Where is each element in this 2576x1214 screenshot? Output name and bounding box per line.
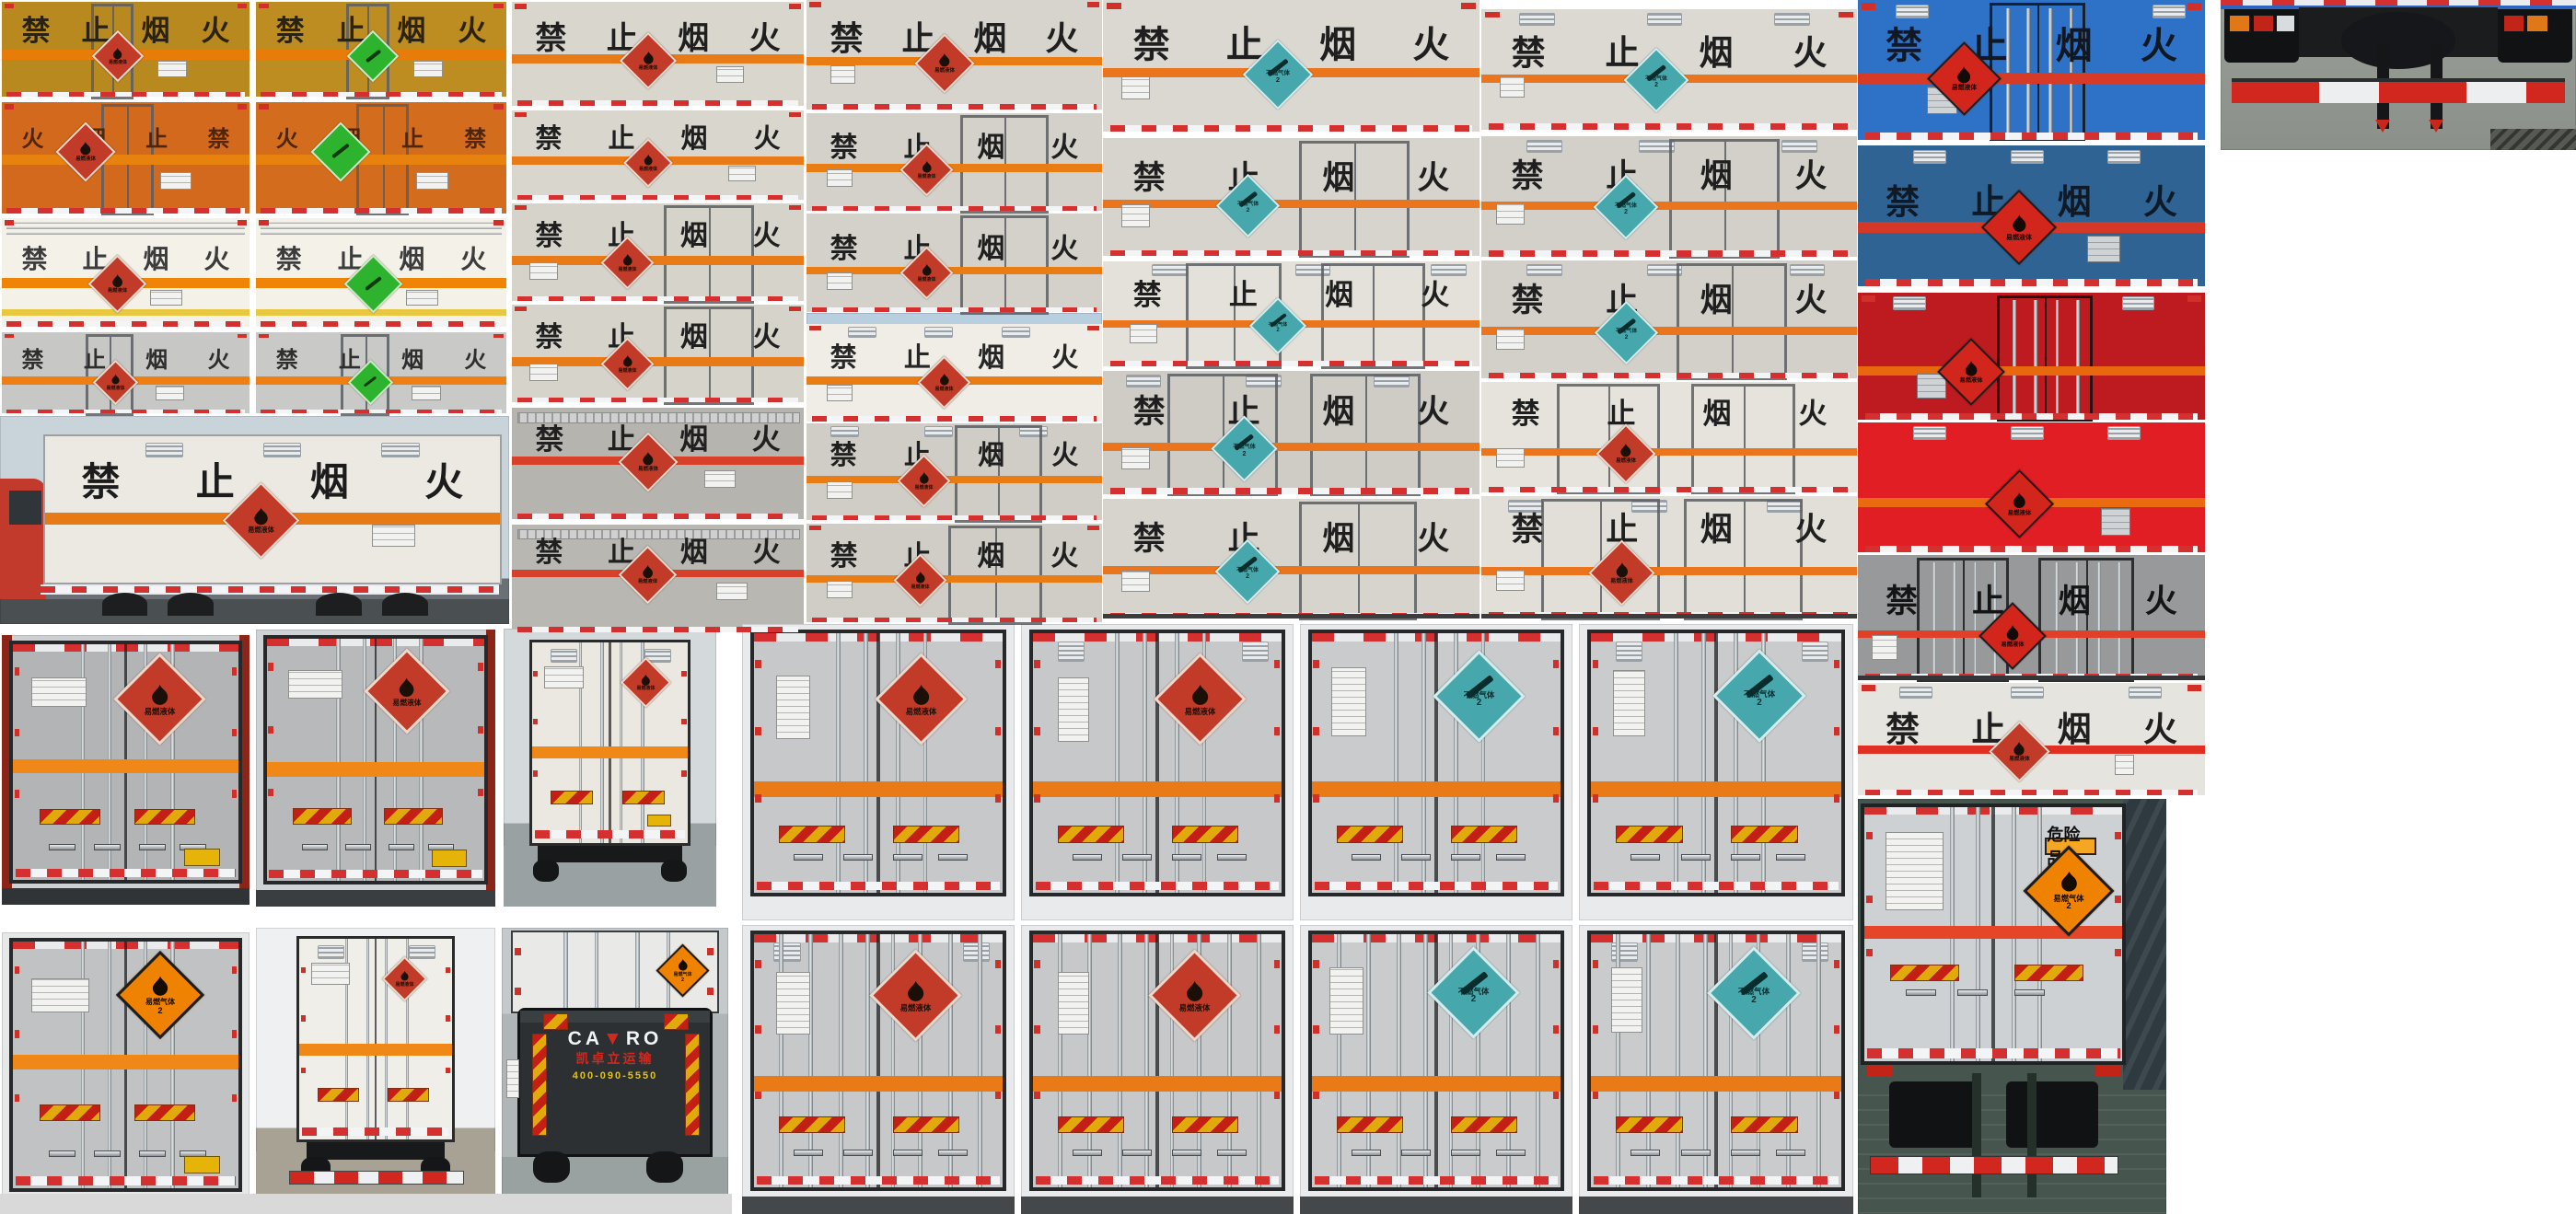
- rear-bumper-bar: [2232, 78, 2566, 104]
- no-fireworks-char: 禁: [535, 126, 562, 153]
- reflective-chevron: [388, 1088, 429, 1102]
- ground-shadow: [1481, 614, 1857, 619]
- info-plate: [704, 470, 736, 488]
- top-rail: [6, 222, 244, 224]
- flame-icon: [2010, 491, 2029, 511]
- warning-stripe: [1103, 200, 1479, 208]
- placard-class-number: 2: [1246, 573, 1249, 581]
- info-plate: [2115, 755, 2134, 775]
- box-truck-side-photo: 易燃液体: [1858, 422, 2205, 552]
- vent-louver: [1774, 13, 1810, 26]
- cargo-box-side: 禁止烟火易燃液体: [1481, 382, 1857, 492]
- edge-marker: [232, 1030, 238, 1038]
- edge-marker: [1553, 727, 1559, 735]
- door-handle: [49, 844, 75, 850]
- info-plate: [1121, 204, 1150, 227]
- rear-doors: 易燃液体: [750, 630, 1006, 896]
- door-handle: [1352, 1150, 1381, 1156]
- background-structure: [2123, 799, 2166, 1090]
- no-fireworks-char: 禁: [207, 129, 229, 151]
- cargo-box-side: 禁止烟火易燃液体: [2, 2, 249, 97]
- no-fireworks-char: 禁: [830, 134, 858, 162]
- non-flammable-gas-placard: 不燃气体2: [1433, 650, 1525, 742]
- info-plate: [1496, 203, 1525, 225]
- placard-face: 易燃液体: [1949, 350, 1993, 394]
- ground-shadow: [1300, 1197, 1572, 1214]
- placard-label: 易燃液体: [639, 167, 657, 171]
- brand-text: RO: [626, 1028, 663, 1049]
- edge-marker: [515, 948, 521, 955]
- rear-doors: 易燃气体2: [9, 938, 242, 1191]
- chassis-rail: [41, 584, 499, 595]
- no-fireworks-char: 禁: [464, 129, 486, 151]
- warning-stripe: [1481, 202, 1857, 210]
- placard-face: 易燃液体: [629, 443, 667, 481]
- door-handle: [139, 1150, 166, 1157]
- vent-louver: [551, 649, 577, 663]
- vent-louver: [848, 327, 876, 338]
- warning-stripe: [1312, 1076, 1561, 1091]
- placard-label: 易燃气体: [145, 999, 175, 1006]
- no-fireworks-char: 止: [1229, 281, 1258, 309]
- truck-rear-doors-photo: 易燃液体: [742, 624, 1015, 920]
- info-plate: [716, 583, 748, 599]
- no-fireworks-char: 火: [22, 129, 44, 151]
- placard-face: 不燃气体2: [1255, 52, 1301, 98]
- flame-icon: [2003, 623, 2022, 642]
- placard-face: 易燃液体: [630, 42, 667, 79]
- reflective-strip: [1036, 1176, 1280, 1185]
- door-gap: [1714, 934, 1717, 1187]
- no-fireworks-text: 禁止烟火: [830, 236, 1079, 263]
- corner-marker: [1087, 2, 1099, 7]
- door-handle: [1172, 1150, 1201, 1156]
- info-plate: [150, 290, 181, 306]
- box-truck-side-photo: 禁止烟火不燃气体2: [1103, 138, 1479, 256]
- warning-stripe: [13, 1055, 238, 1069]
- vent-louver: [1431, 264, 1467, 275]
- edge-marker: [1593, 1092, 1599, 1100]
- info-plate: [827, 169, 853, 187]
- no-fireworks-char: 烟: [2059, 585, 2091, 618]
- reflective-strip: [6, 410, 244, 413]
- no-fireworks-char: 烟: [680, 223, 708, 250]
- ground-shadow: [1579, 1197, 1853, 1214]
- corner-marker: [259, 104, 269, 110]
- warning-triangle: [2375, 120, 2390, 133]
- reflective-strip: [302, 1127, 448, 1136]
- no-fireworks-char: 火: [753, 223, 781, 250]
- info-plate: [776, 676, 810, 740]
- placard-class-number: 2: [1471, 995, 1476, 1005]
- box-truck-side-photo: 禁止烟火不燃气体2: [1103, 499, 1479, 619]
- info-plate: [1613, 670, 1645, 736]
- reflective-strip: [1867, 1048, 2119, 1058]
- no-fireworks-char: 烟: [680, 539, 708, 567]
- reflective-chevron: [551, 791, 593, 804]
- cargo-box-side: 禁止烟火易燃液体: [806, 214, 1102, 312]
- warning-stripe: [532, 746, 689, 758]
- reflective-chevron: [1731, 1116, 1798, 1133]
- info-plate: [1500, 76, 1524, 98]
- reflective-strip: [6, 92, 244, 97]
- tail-light-amber: [2527, 16, 2547, 32]
- rear-doors: 不燃气体2: [1308, 630, 1564, 896]
- door-lock-rod: [385, 939, 388, 1139]
- placard-face: 易燃液体: [1997, 481, 2042, 526]
- no-fireworks-char: 烟: [977, 543, 1004, 571]
- reflective-strip: [517, 398, 797, 402]
- info-plate: [827, 481, 853, 499]
- info-plate: [1121, 447, 1150, 468]
- door-lock-rod: [1394, 633, 1398, 893]
- brand-subtitle: 凯卓立运输: [520, 1049, 710, 1062]
- vent-louver: [2107, 150, 2141, 165]
- corner-marker: [2187, 295, 2201, 302]
- vent-louver: [1790, 264, 1826, 277]
- door-gap: [375, 639, 377, 881]
- no-fireworks-char: 禁: [1512, 284, 1544, 317]
- marker-strip: [2221, 0, 2576, 6]
- no-fireworks-char: 火: [2141, 28, 2177, 64]
- edge-marker: [1313, 1025, 1318, 1034]
- flame-icon: [1954, 65, 1974, 86]
- wheel: [533, 1151, 569, 1183]
- box-truck-side-photo: 禁止烟火: [256, 218, 506, 327]
- vent-louver: [263, 443, 301, 457]
- edge-marker: [15, 1094, 20, 1103]
- warning-stripe: [256, 155, 506, 165]
- reflective-chevron: [1890, 965, 1959, 982]
- gas-cylinder-icon: [364, 376, 377, 387]
- truck-rear-doors-photo: 不燃气体2: [1300, 624, 1572, 920]
- placard-class-number: 2: [1751, 995, 1757, 1005]
- flame-icon: [1618, 444, 1634, 460]
- door-lock-rod: [620, 642, 622, 842]
- reflective-chevron: [384, 808, 442, 825]
- placard-face: 易燃液体: [1600, 551, 1643, 595]
- no-fireworks-char: 火: [753, 539, 781, 567]
- edge-marker: [1866, 896, 1873, 903]
- reflective-strip: [812, 206, 1096, 211]
- no-fireworks-text: 禁止烟火: [830, 543, 1079, 571]
- door-handle: [1731, 1150, 1760, 1156]
- side-door: [1669, 139, 1780, 259]
- no-fireworks-char: 火: [753, 324, 781, 352]
- corner-marker: [2187, 3, 2201, 10]
- flammable-liquid-placard: 易燃液体: [114, 653, 206, 745]
- edge-marker: [755, 794, 760, 803]
- side-door: [1997, 295, 2093, 422]
- door-lock-rod: [1674, 633, 1678, 893]
- door-lock-rod: [1974, 562, 1978, 676]
- reflective-strip: [1489, 250, 1850, 257]
- edge-marker: [1866, 832, 1873, 839]
- side-door-split: [2045, 298, 2047, 419]
- edge-marker: [232, 790, 238, 797]
- warning-stripe: [1481, 567, 1857, 575]
- edge-marker: [232, 1094, 238, 1103]
- flame-icon: [642, 154, 655, 167]
- reflective-chevron: [1731, 826, 1798, 843]
- door-lock-rod: [1536, 934, 1540, 1187]
- reflective-strip: [757, 1176, 1001, 1185]
- flammable-gas-placard: 易燃气体2: [116, 951, 204, 1039]
- no-fireworks-char: 火: [1412, 27, 1449, 64]
- placard-class-number: 2: [1624, 334, 1628, 341]
- reflective-strip: [6, 321, 244, 327]
- placard-label: 易燃液体: [248, 527, 274, 534]
- license-plate: [432, 850, 466, 867]
- rear-bumper: [289, 1171, 463, 1184]
- info-plate: [311, 963, 350, 985]
- reflective-strip: [517, 195, 797, 200]
- vent-louver: [924, 426, 953, 436]
- truck-rear-doors-photo: 易燃气体2: [2, 932, 249, 1214]
- placard-label: 易燃液体: [2009, 757, 2029, 763]
- door-handle: [843, 854, 873, 861]
- flammable-liquid-placard: 易燃液体: [621, 657, 671, 708]
- no-fireworks-text: 禁止烟火: [1133, 162, 1450, 194]
- placard-face: 易燃液体: [130, 669, 190, 729]
- no-fireworks-char: 火: [201, 17, 229, 45]
- vent-louver: [1781, 140, 1817, 153]
- reflective-strip: [269, 870, 482, 878]
- gas-cylinder-icon: [366, 49, 381, 62]
- reflective-strip: [261, 410, 501, 413]
- cargo-box-side: 禁止烟火不燃气体2: [1481, 260, 1857, 378]
- no-fireworks-text: 禁止烟火: [830, 443, 1079, 469]
- edge-marker: [1313, 1092, 1318, 1100]
- edge-marker: [15, 966, 20, 975]
- cargo-box-side: 禁止烟火易燃液体: [806, 0, 1102, 110]
- placard-label: 易燃液体: [396, 983, 414, 988]
- flammable-liquid-placard: 易燃液体: [1985, 469, 2054, 538]
- box-truck-side-photo: 易燃液体: [1858, 293, 2205, 420]
- info-plate: [1121, 76, 1150, 99]
- truck-rear-doors-photo: 易燃液体: [2, 635, 249, 905]
- flame-icon: [1182, 979, 1207, 1004]
- reflective-strip: [1110, 250, 1472, 256]
- placard-face: 不燃气体2: [1226, 550, 1269, 593]
- reflective-strip: [535, 830, 685, 838]
- reflective-strip: [812, 416, 1096, 422]
- side-door: [955, 425, 1043, 523]
- edge-marker: [1593, 960, 1599, 968]
- flame-icon: [621, 354, 635, 369]
- no-fireworks-text: 禁止烟火: [1512, 284, 1828, 317]
- warning-stripe: [1033, 781, 1282, 797]
- edge-marker: [995, 1092, 1001, 1100]
- reflective-strip: [41, 586, 499, 593]
- vent-louver: [1526, 140, 1562, 153]
- box-truck-side-photo: 火烟止禁易燃液体: [2, 102, 249, 214]
- reflective-chevron: [134, 1104, 195, 1121]
- door-handle: [1122, 854, 1152, 861]
- corner-marker: [1107, 3, 1121, 9]
- no-fireworks-char: 火: [207, 350, 229, 372]
- placard-face: 易燃液体: [907, 464, 941, 498]
- placard-face: 不燃气体2: [1635, 59, 1677, 101]
- brand-text: CA: [568, 1028, 603, 1049]
- no-fireworks-char: 禁: [1512, 160, 1544, 192]
- cargo-box-side: 禁止烟火不燃气体2: [1103, 261, 1479, 366]
- vent-louver: [2011, 687, 2044, 699]
- cargo-box-side: 禁止烟火不燃气体2: [1103, 371, 1479, 494]
- side-door: [960, 215, 1049, 315]
- flame-icon: [110, 47, 124, 61]
- no-fireworks-char: 烟: [679, 425, 708, 454]
- reflective-chevron: [1451, 1116, 1517, 1133]
- no-fireworks-char: 禁: [830, 345, 857, 372]
- info-plate: [1121, 571, 1150, 592]
- truck-rear-view-photo: 易燃液体: [256, 928, 495, 1214]
- placard-label: 易燃液体: [934, 69, 955, 74]
- box-truck-side-photo: 禁止烟火易燃液体: [1858, 555, 2205, 680]
- reflective-chevron: [1172, 1116, 1238, 1133]
- no-fireworks-char: 禁: [1512, 36, 1546, 70]
- placard-label: 易燃液体: [1611, 580, 1633, 585]
- cab-window: [9, 491, 41, 525]
- license-plate: [647, 815, 671, 827]
- rear-doors: 易燃液体: [750, 931, 1006, 1191]
- info-plate: [529, 364, 558, 381]
- placard-label: 易燃液体: [1959, 378, 1982, 384]
- door-gap: [1155, 934, 1158, 1187]
- no-fireworks-char: 止: [196, 463, 235, 502]
- door-lock-rod: [595, 932, 598, 1012]
- no-fireworks-char: 火: [203, 247, 229, 272]
- no-fireworks-char: 禁: [830, 236, 858, 263]
- vent-louver: [1802, 942, 1828, 962]
- corner-marker: [1461, 3, 1476, 9]
- door-handle: [94, 1150, 121, 1157]
- placard-face: 不燃气体2: [1259, 307, 1296, 344]
- no-fireworks-char: 禁: [830, 543, 858, 571]
- placard-label: 易燃液体: [108, 290, 127, 295]
- license-plate: [184, 1156, 220, 1174]
- corner-marker: [1839, 12, 1853, 18]
- no-fireworks-char: 烟: [145, 350, 168, 372]
- edge-marker: [1553, 794, 1559, 803]
- edge-marker: [1313, 960, 1318, 968]
- no-fireworks-char: 烟: [310, 463, 349, 502]
- rear-doors: 易燃液体: [296, 936, 455, 1142]
- info-plate: [31, 677, 87, 708]
- corner-marker: [259, 220, 269, 225]
- door-gap: [1434, 934, 1437, 1187]
- door-handle: [1496, 1150, 1526, 1156]
- info-plate: [1886, 832, 1944, 910]
- reflective-chevron: [1058, 826, 1124, 843]
- wheel: [316, 593, 362, 616]
- no-fireworks-char: 火: [464, 350, 486, 372]
- edge-marker: [1593, 1025, 1599, 1034]
- wheel: [646, 1151, 682, 1183]
- info-plate: [827, 581, 853, 598]
- vent-louver: [1913, 426, 1946, 440]
- reflective-chevron: [293, 808, 351, 825]
- rear-doors: 不燃气体2: [1587, 630, 1845, 896]
- placard-face: 不燃气体2: [1605, 186, 1647, 228]
- door-handle: [1172, 854, 1201, 861]
- vent-louver: [1893, 296, 1926, 309]
- no-fireworks-char: 烟: [977, 236, 1004, 263]
- vent-louver: [2122, 296, 2155, 309]
- no-fireworks-char: 火: [2143, 185, 2177, 219]
- corner-marker: [789, 205, 801, 210]
- edge-marker: [995, 960, 1001, 968]
- vent-louver: [318, 945, 343, 959]
- wheel: [1889, 1081, 1982, 1148]
- corner-marker: [5, 104, 15, 110]
- side-door-split: [2086, 561, 2088, 679]
- ground-shadow: [256, 890, 495, 907]
- door-handle: [389, 844, 414, 850]
- reflective-strip: [1315, 882, 1559, 891]
- door-handle: [1217, 854, 1247, 861]
- placard-label: 易燃液体: [145, 708, 176, 715]
- info-plate: [413, 61, 443, 77]
- warning-stripe: [1033, 1076, 1282, 1091]
- vent-louver: [1058, 642, 1085, 662]
- reflective-chevron: [1616, 826, 1683, 843]
- no-fireworks-text: 禁止烟火: [1133, 281, 1450, 309]
- box-truck-side-photo: 禁止烟火易燃液体: [806, 0, 1102, 110]
- placard-face: 易燃液体: [66, 133, 105, 171]
- warning-stripe: [299, 1044, 452, 1056]
- right-fender: [2498, 9, 2572, 64]
- door-handle: [1122, 1150, 1152, 1156]
- corner-marker: [1485, 12, 1500, 18]
- placard-face: 易燃液体: [610, 246, 644, 280]
- corner-marker: [5, 220, 15, 225]
- no-fireworks-char: 火: [458, 17, 486, 45]
- no-fireworks-char: 烟: [2056, 28, 2093, 64]
- door-handle: [843, 1150, 873, 1156]
- corner-marker: [1862, 685, 1875, 690]
- placard-class-number: 2: [1247, 207, 1250, 214]
- no-fireworks-char: 禁: [830, 22, 864, 55]
- cargo-box-side: 禁止烟火易燃液体: [512, 2, 804, 106]
- placard-label: 易燃液体: [2001, 642, 2024, 648]
- box-truck-side-photo: 禁止烟火易燃液体: [2, 218, 249, 327]
- edge-marker: [1553, 1025, 1559, 1034]
- door-handle: [345, 844, 371, 850]
- box-truck-side-photo: 禁止烟火易燃液体: [512, 203, 804, 301]
- no-fireworks-text: 禁止烟火: [1512, 399, 1828, 428]
- corner-marker: [1087, 526, 1099, 530]
- edge-marker: [15, 729, 20, 736]
- edge-marker: [1553, 960, 1559, 968]
- truck-rear-doors-photo: 不燃气体2: [1579, 624, 1853, 920]
- flame-icon: [2009, 214, 2030, 235]
- truck-rear-doors-photo: 易燃液体: [1021, 925, 1294, 1214]
- box-truck-side-photo: 禁止烟火易燃液体: [806, 214, 1102, 312]
- box-truck-side-photo: 禁止烟火易燃液体: [806, 313, 1102, 422]
- corner-marker: [515, 4, 527, 9]
- edge-marker: [995, 794, 1001, 803]
- no-fireworks-char: 火: [276, 129, 298, 151]
- door-lock-rod: [1118, 934, 1122, 1187]
- tail-lift-platform: CA▼RO凯卓立运输400-090-5550: [517, 1008, 713, 1157]
- reflective-strip: [1110, 361, 1472, 366]
- door-lock-rod: [2075, 562, 2079, 676]
- cargo-box-side: 禁止烟火易燃液体: [1481, 496, 1857, 619]
- placard-face: 不燃气体2: [1606, 312, 1647, 353]
- door-lock-rod: [1257, 934, 1261, 1187]
- no-fireworks-char: 火: [1050, 134, 1078, 162]
